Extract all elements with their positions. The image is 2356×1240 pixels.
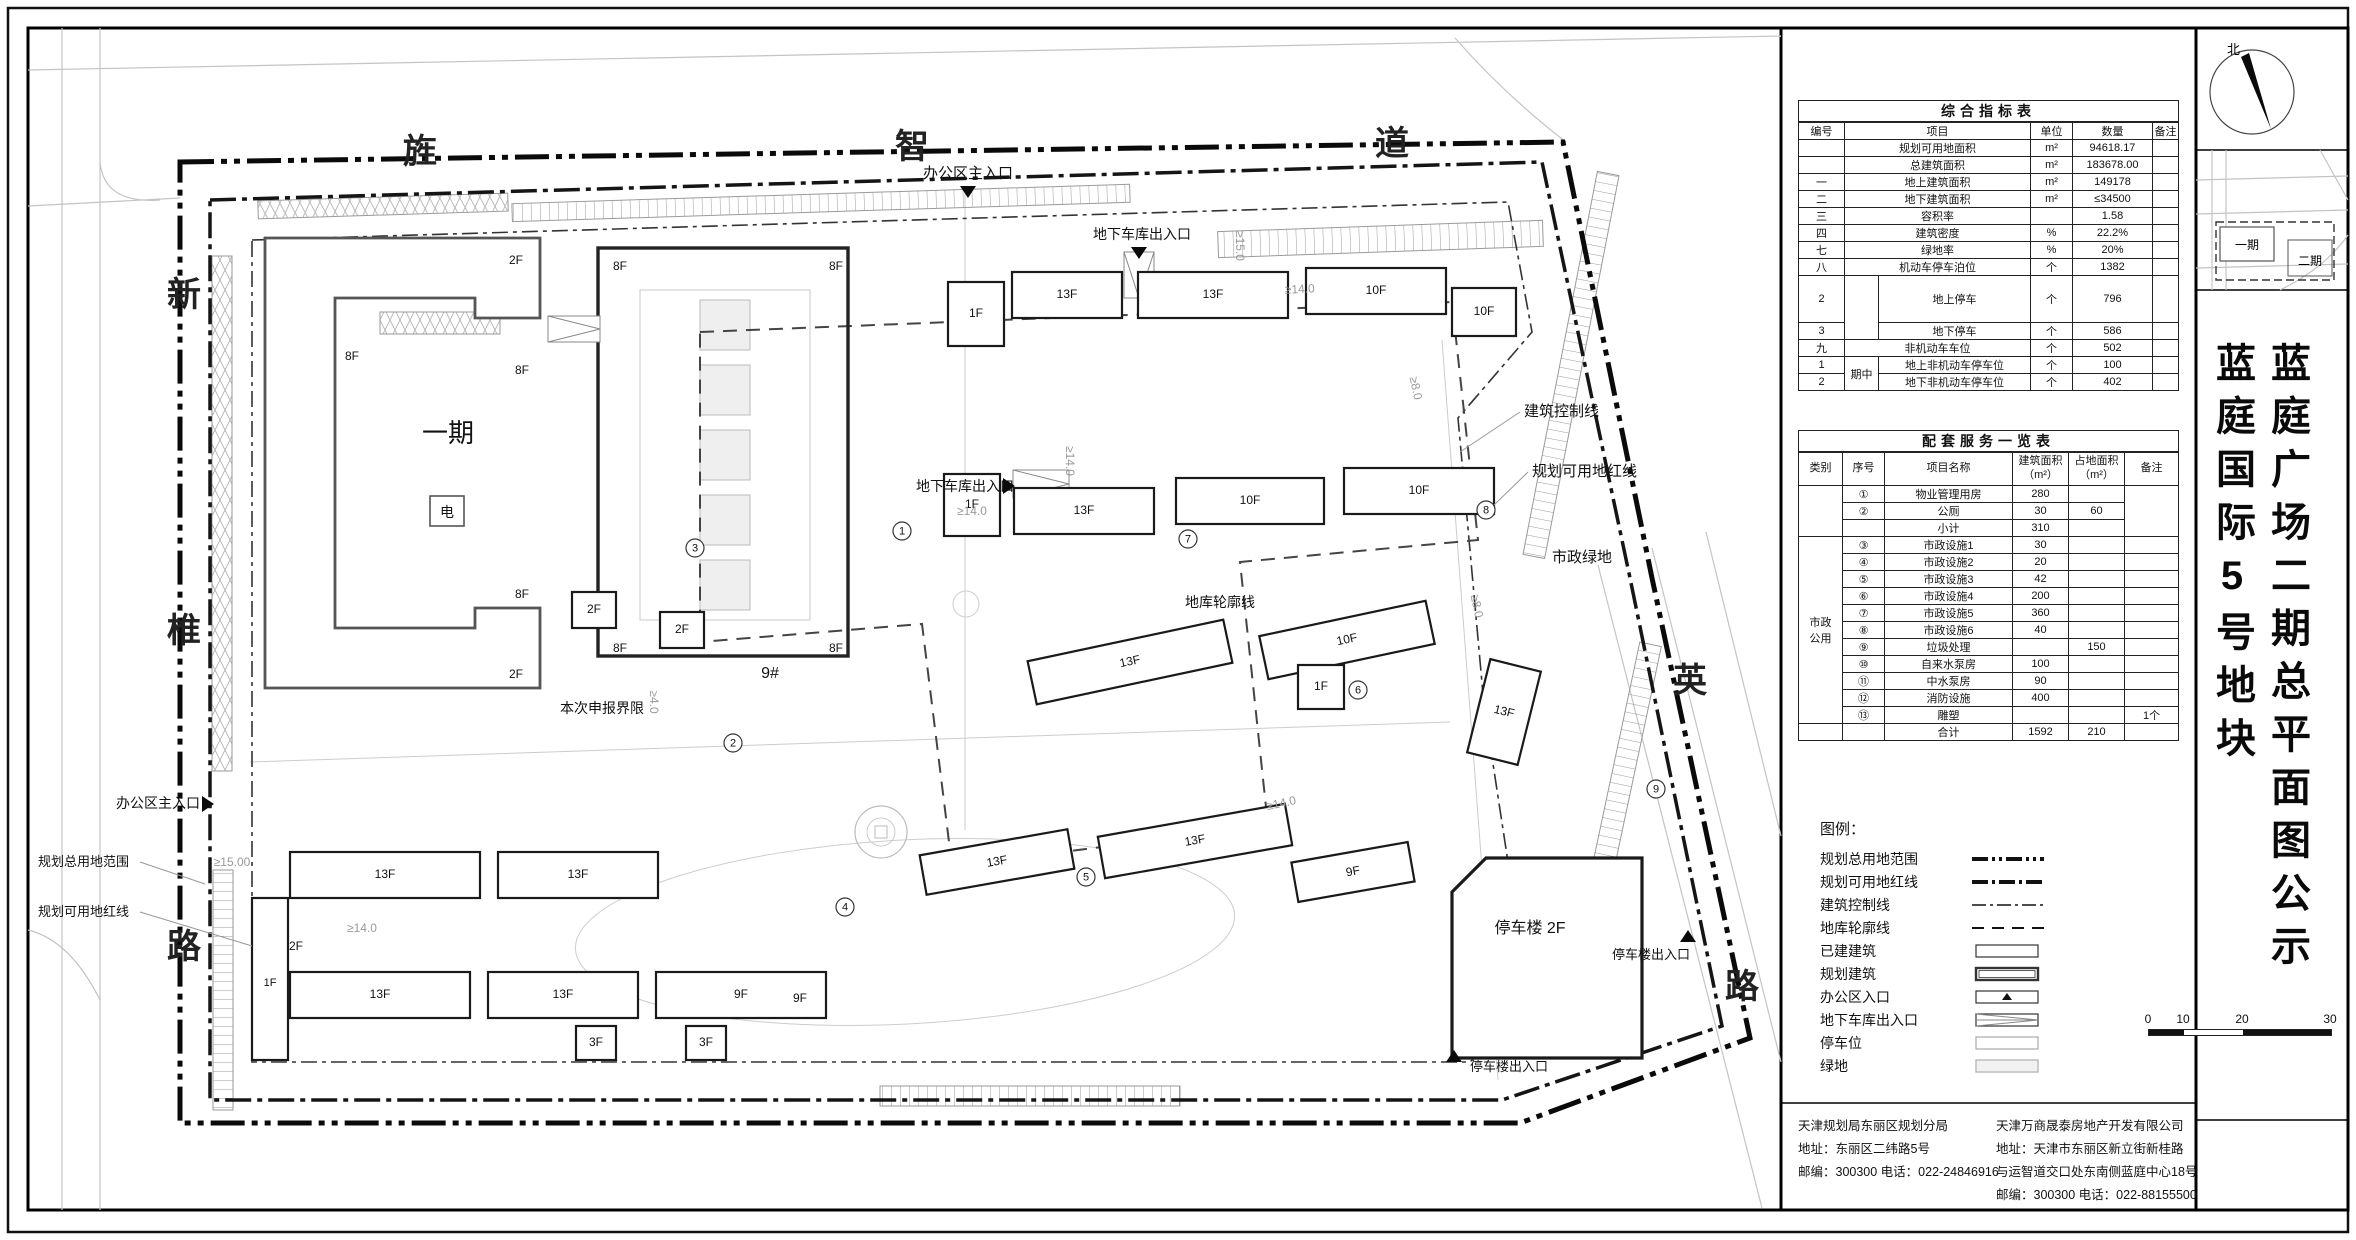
legend-symbol-box-triangle [1970,989,2046,1005]
legend-item-label: 建筑控制线 [1820,895,1970,915]
legend-item-label: 已建建筑 [1820,941,1970,961]
legend-symbol-line-dash [1970,920,2046,936]
table2-row: ⑦市政设施5360 [1799,605,2179,622]
road-name-char: 英 [1673,662,1708,700]
map-annotation-label: 8F [829,259,843,273]
table2-row: ①物业管理用房280 [1799,486,2179,503]
building-floor-label: 13F [1074,503,1095,517]
building-floor-label: 3F [589,1035,603,1049]
scale-bar: 0102030 [2148,1012,2334,1042]
building-floor-label: 9F [1345,863,1361,879]
legend-symbol-box-light [1970,1035,2046,1051]
table1-row: 四建筑密度%22.2% [1799,225,2179,242]
legend-item-label: 规划建筑 [1820,964,1970,984]
table2-row: ⑨垃圾处理150 [1799,639,2179,656]
table1-row: 2地上停车个796 [1799,276,2179,323]
building-floor-label: 2F [587,602,601,616]
building-floor-label: 13F [1203,287,1224,301]
summary-indicator-table: 综合指标表编号项目单位数量备注规划可用地面积m²94618.17总建筑面积m²1… [1798,100,2179,391]
table1-row: 1期中地上非机动车停车位个100 [1799,357,2179,374]
contact-line: 地址：东丽区二纬路5号 [1798,1138,1988,1161]
map-annotation-label: ≥14.0 [347,921,377,935]
road-name-char: 椎 [167,612,201,650]
facility-marker-number: 3 [692,543,698,555]
table1-row: 二地下建筑面积m²≤34500 [1799,191,2179,208]
sheet-title-main: 蓝庭广场二期总平面图公示 [2258,342,2316,978]
map-annotation-label: 8F [613,641,627,655]
developer-contact: 天津万商晟泰房地产开发有限公司地址：天津市东丽区新立街新桂路与运智道交口处东南侧… [1996,1115,2196,1208]
table1-row: 七绿地率%20% [1799,242,2179,259]
map-annotation-label: 8F [613,259,627,273]
planning-bureau-contact: 天津规划局东丽区规划分局地址：东丽区二纬路5号邮编：300300 电话：022-… [1798,1115,1988,1184]
map-annotation-label: ≥4.0 [647,690,661,714]
legend-item: 规划建筑 [1820,962,2180,985]
building-floor-label: 13F [370,987,391,1001]
map-annotation-label: 8F [515,587,529,601]
map-annotation-label: 一期 [422,418,474,448]
table2-title: 配套服务一览表 [1799,431,2179,453]
legend-item: 绿地 [1820,1054,2180,1077]
building-floor-label: 13F [375,867,396,881]
table2-row: ⑬雕塑1个 [1799,707,2179,724]
table2-row: ⑧市政设施640 [1799,622,2179,639]
table2-row: 合计1592210 [1799,724,2179,741]
road-name-char: 道 [1375,125,1409,163]
road-name-char: 新 [167,276,201,314]
map-annotation-label: ≥14.0 [1284,281,1315,297]
building-floor-label: 10F [1474,304,1495,318]
legend-item-label: 规划总用地范围 [1820,849,1970,869]
legend-item: 地下车库出入口 [1820,1008,2180,1031]
facility-marker-number: 6 [1355,685,1361,697]
map-annotation-label: 停车楼 2F [1494,919,1565,937]
map-annotation-label: 8F [829,641,843,655]
legend-symbol-line-thin-dashdot [1970,897,2046,913]
table2-row: 小计310 [1799,520,2179,537]
table2-row: ⑥市政设施4200 [1799,588,2179,605]
table1-row: 总建筑面积m²183678.00 [1799,157,2179,174]
map-annotation-label: 2F [509,253,523,267]
road-name-char: 路 [1725,968,1760,1006]
facility-marker-number: 2 [730,738,736,750]
sheet-title-sub: 蓝庭国际5号地块 [2203,342,2261,770]
legend-symbol-box-green [1970,1058,2046,1074]
legend: 图例： 规划总用地范围规划可用地红线建筑控制线地库轮廓线已建建筑规划建筑办公区入… [1820,818,2180,1077]
facility-marker-number: 8 [1483,505,1489,517]
contact-line: 地址：天津市东丽区新立街新桂路 [1996,1138,2196,1161]
legend-item: 停车位 [1820,1031,2180,1054]
building-floor-label: 1F [1314,679,1328,693]
map-annotation-label: 2F [509,667,523,681]
scale-tick: 0 [2145,1012,2152,1026]
facility-marker-number: 1 [899,526,905,538]
map-annotation-label: 8F [515,363,529,377]
map-annotation-label: ≥15.0 [1233,231,1247,261]
scale-tick: 20 [2235,1012,2248,1026]
legend-symbol-box-ramp [1970,1012,2046,1028]
table1-row: 九非机动车车位个502 [1799,340,2179,357]
map-annotation-label: 规划可用地红线 [1532,463,1637,480]
map-annotation-label: 1F [264,977,277,989]
map-annotation-label: 电 [440,504,454,520]
map-annotation-label: 停车楼出入口 [1470,1059,1548,1074]
legend-symbol-box-double [1970,966,2046,982]
legend-item: 地库轮廓线 [1820,916,2180,939]
map-annotation-label: 8F [345,349,359,363]
contact-line: 邮编：300300 电话：022-24846916 [1798,1161,1988,1184]
table1-row: 八机动车停车泊位个1382 [1799,259,2179,276]
legend-symbol-line-bold-dashdotdot [1970,851,2046,867]
road-name-char: 智 [895,128,929,166]
map-annotation-label: 2F [289,939,303,953]
facility-marker-number: 9 [1653,784,1659,796]
facility-marker-number: 5 [1083,872,1089,884]
map-annotation-label: 规划总用地范围 [38,854,129,869]
building-floor-label: 2F [675,622,689,636]
legend-item-label: 地库轮廓线 [1820,918,1970,938]
map-annotation-label: ≥14.0 [957,504,987,518]
building-floor-label: 9F [734,987,748,1001]
table2-row: ⑩自来水泵房100 [1799,656,2179,673]
scale-bar-line [2148,1029,2332,1036]
table2-row: ⑫消防设施400 [1799,690,2179,707]
legend-symbol-line-bold-dashdot [1970,874,2046,890]
facility-marker-number: 4 [842,902,848,914]
service-facility-table: 配套服务一览表类别序号项目名称建筑面积（m²）占地面积（m²）备注①物业管理用房… [1798,430,2179,741]
legend-item-label: 规划可用地红线 [1820,872,1970,892]
scale-tick: 30 [2323,1012,2336,1026]
legend-item-label: 绿地 [1820,1056,1970,1076]
legend-item: 建筑控制线 [1820,893,2180,916]
legend-symbol-box [1970,943,2046,959]
road-name-char: 路 [167,928,202,966]
map-annotation-label: 地下车库出入口 [916,478,1014,494]
building-floor-label: 13F [1057,287,1078,301]
map-annotation-label: 地下车库出入口 [1093,226,1191,242]
contact-line: 与运智道交口处东南侧蓝庭中心18号 [1996,1161,2196,1184]
map-annotation-label: 建筑控制线 [1524,403,1599,420]
building-floor-label: 10F [1240,493,1261,507]
map-annotation-label: 规划可用地红线 [38,904,129,919]
map-annotation-label: 市政绿地 [1552,549,1612,566]
building-floor-label: 10F [1366,283,1387,297]
legend-item-label: 地下车库出入口 [1820,1010,1970,1030]
table2-row: ④市政设施220 [1799,554,2179,571]
minimap-phase2-label: 二期 [2298,254,2322,268]
contact-line: 天津规划局东丽区规划分局 [1798,1115,1988,1138]
legend-item: 规划总用地范围 [1820,847,2180,870]
contact-line: 天津万商晟泰房地产开发有限公司 [1996,1115,2196,1138]
building-floor-label: 13F [553,987,574,1001]
table1-row: 规划可用地面积m²94618.17 [1799,140,2179,157]
table2-row: ⑤市政设施342 [1799,571,2179,588]
legend-heading: 图例： [1820,818,2180,839]
building-floor-label: 3F [699,1035,713,1049]
plan-sheet: 1F13F13F10F10F1F13F10F10F13F10F13F1F13F1… [0,0,2356,1240]
legend-item: 规划可用地红线 [1820,870,2180,893]
legend-item: 已建建筑 [1820,939,2180,962]
table1-row: 一地上建筑面积m²149178 [1799,174,2179,191]
table2-row: 市政公用③市政设施130 [1799,537,2179,554]
map-annotation-label: 本次申报界限 [560,700,644,716]
table1-row: 三容积率1.58 [1799,208,2179,225]
scale-tick: 10 [2176,1012,2189,1026]
map-annotation-label: 办公区主入口 [923,165,1013,182]
minimap-phase1-label: 一期 [2235,238,2259,252]
table2-row: ②公厕3060 [1799,503,2179,520]
building-floor-label: 13F [568,867,589,881]
map-annotation-label: 办公区主入口 [116,795,200,811]
map-annotation-label: ≥15.00 [214,855,251,869]
map-annotation-label: 地库轮廓线 [1185,594,1255,610]
legend-item: 办公区入口 [1820,985,2180,1008]
road-name-char: 旌 [403,133,437,171]
map-annotation-label: 9# [761,665,779,682]
table2-row: ⑪中水泵房90 [1799,673,2179,690]
table1-title: 综合指标表 [1799,101,2179,123]
map-annotation-label: 停车楼出入口 [1612,947,1690,962]
legend-item-label: 办公区入口 [1820,987,1970,1007]
facility-marker-number: 7 [1185,534,1191,546]
legend-item-label: 停车位 [1820,1033,1970,1053]
contact-line: 邮编：300300 电话：022-88155500 [1996,1184,2196,1207]
building-floor-label: 10F [1409,483,1430,497]
map-annotation-label: 9F [793,991,807,1005]
north-label: 北 [2227,42,2240,57]
map-annotation-label: ≥14.0 [1063,446,1077,476]
building-floor-label: 1F [969,306,983,320]
